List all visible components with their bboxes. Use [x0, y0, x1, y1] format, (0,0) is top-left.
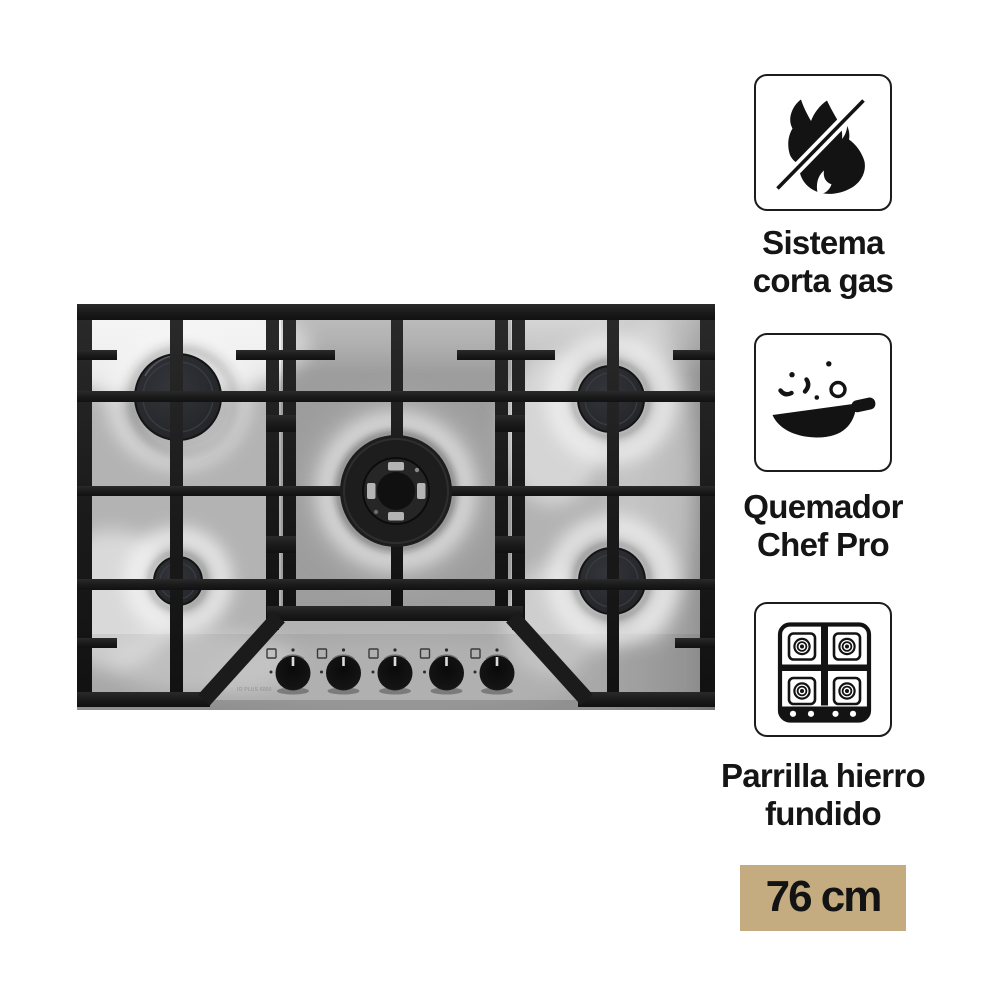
svg-text:IO PLUS 6000: IO PLUS 6000 — [237, 687, 272, 693]
